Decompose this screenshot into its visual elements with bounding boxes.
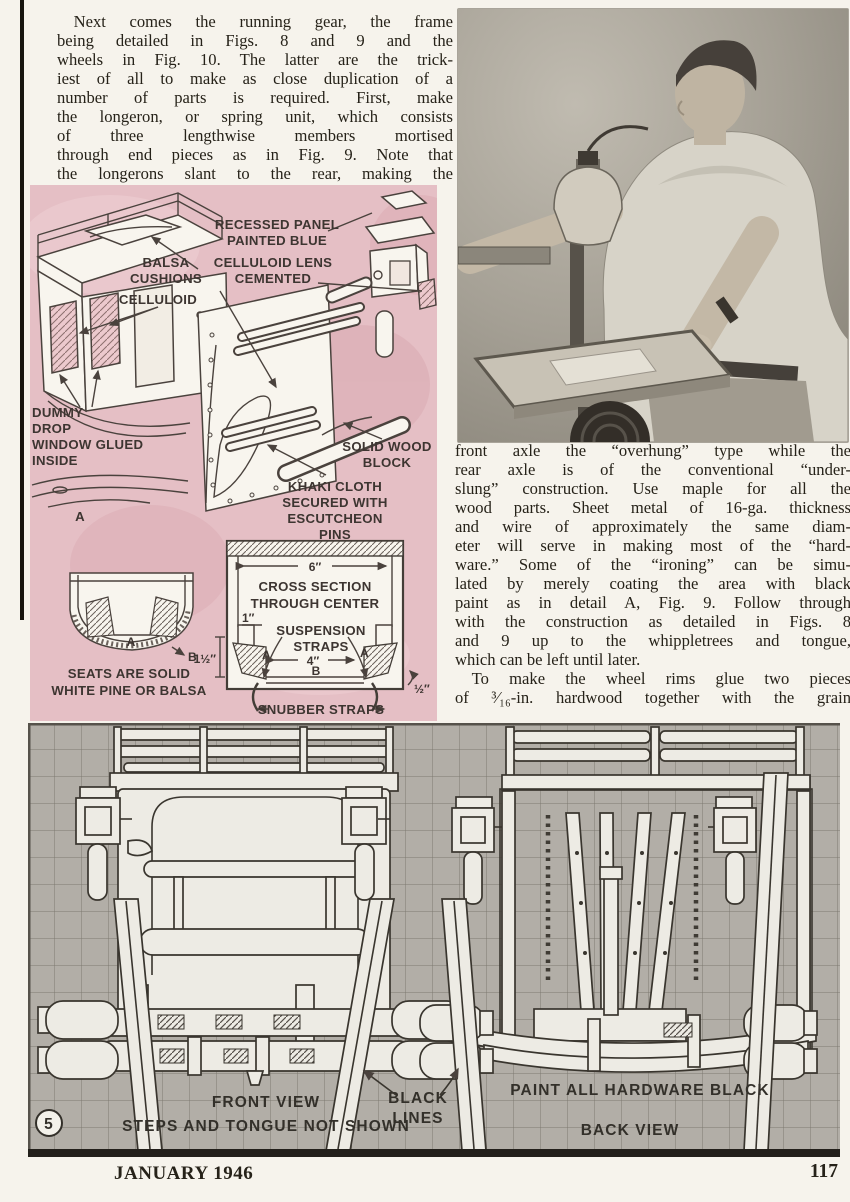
khaki-label-4: PINS xyxy=(319,527,351,542)
pink-panel-illustration: A xyxy=(30,185,437,721)
left-margin-rule xyxy=(20,0,24,620)
cross-section-label-2: THROUGH CENTER xyxy=(251,596,380,611)
dim-6-label: 6″ xyxy=(309,560,322,574)
recessed-label-2: PAINTED BLUE xyxy=(227,233,327,248)
black-lines-label-1: BLACK xyxy=(388,1090,448,1107)
dim-15-label: 1½″ xyxy=(194,652,217,666)
detail-a-label: A xyxy=(75,509,85,524)
plan-illustration: FRONT VIEW STEPS AND TONGUE NOT SHOWN BL… xyxy=(28,723,840,1157)
photo-illustration xyxy=(458,9,848,442)
celluloid-label: CELLULOID xyxy=(119,292,197,307)
steps-note-label: STEPS AND TONGUE NOT SHOWN xyxy=(122,1118,410,1135)
article-column-right: front axle the “overhung” type while the… xyxy=(455,441,850,707)
balsa-label-1: BALSA xyxy=(143,255,190,270)
section-b-label: B xyxy=(312,664,321,678)
recessed-label-1: RECESSED PANEL xyxy=(215,217,339,232)
right-paragraph-1: front axle the “overhung” type while the… xyxy=(455,441,850,650)
seat-a-label: A xyxy=(127,635,136,649)
suspension-label-2: STRAPS xyxy=(293,639,348,654)
seats-label-1: SEATS ARE SOLID xyxy=(68,666,190,681)
figure-number: 5 xyxy=(44,1116,54,1133)
dummy-label-3: WINDOW GLUED xyxy=(32,437,143,452)
khaki-label-1: KHAKI CLOTH xyxy=(288,479,382,494)
right-paragraph-2: To make the wheel rims glue two pieces o… xyxy=(455,669,850,707)
cross-section-label-1: CROSS SECTION xyxy=(258,579,371,594)
black-lines-label-2: LINES xyxy=(392,1110,443,1127)
strap-a-right: A xyxy=(360,646,369,660)
solid-wood-label-2: BLOCK xyxy=(363,455,412,470)
neck xyxy=(694,123,726,145)
back-view-label: BACK VIEW xyxy=(581,1122,680,1139)
machine-arm xyxy=(458,247,550,264)
plan-bottom-border xyxy=(28,1149,840,1157)
right-paragraph-1-end: which can be left until later. xyxy=(455,650,850,669)
lens-label-2: CEMENTED xyxy=(235,271,311,286)
plan-left-border xyxy=(28,723,31,1157)
dummy-label-2: DROP xyxy=(32,421,71,436)
footer-page-number: 117 xyxy=(810,1161,838,1183)
lens-label-1: CELLULOID LENS xyxy=(214,255,333,270)
dummy-label-4: INSIDE xyxy=(32,453,78,468)
article-column-left: Next comes the running gear, the frame b… xyxy=(57,12,453,183)
solid-wood-label-1: SOLID WOOD xyxy=(342,439,431,454)
figure-plan-diagram: FRONT VIEW STEPS AND TONGUE NOT SHOWN BL… xyxy=(28,723,840,1157)
snubber-label: SNUBBER STRAPS xyxy=(258,702,385,717)
lamp-shade xyxy=(554,167,622,245)
strap-a-left: A xyxy=(262,648,271,662)
khaki-label-3: ESCUTCHEON xyxy=(287,511,382,526)
figure-pink-panel: A xyxy=(30,185,437,721)
lamp-cap xyxy=(578,151,598,165)
balsa-label-2: CUSHIONS xyxy=(130,271,202,286)
front-view-label: FRONT VIEW xyxy=(212,1094,320,1111)
plan-top-border xyxy=(28,723,840,726)
dummy-label-1: DUMMY xyxy=(32,405,83,420)
footer-issue-date: JANUARY 1946 xyxy=(114,1163,253,1185)
paint-hardware-label: PAINT ALL HARDWARE BLACK xyxy=(510,1082,769,1099)
photo-man-at-drill-press xyxy=(457,8,849,443)
seats-label-2: WHITE PINE OR BALSA xyxy=(51,683,206,698)
dim-1-label: 1″ xyxy=(242,611,255,625)
khaki-label-2: SECURED WITH xyxy=(282,495,387,510)
dim-half-label: ½″ xyxy=(414,682,430,696)
suspension-label-1: SUSPENSION xyxy=(276,623,365,638)
magazine-page: { "article": { "left": "\u2002\u2002Next… xyxy=(0,0,850,1202)
